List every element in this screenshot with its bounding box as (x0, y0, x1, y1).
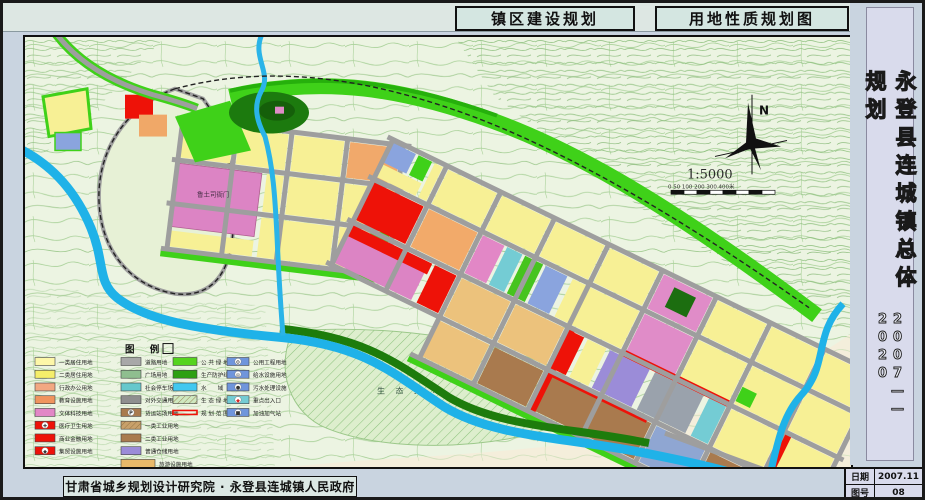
svg-text:✚: ✚ (43, 423, 47, 429)
legend-label: 规 划 范 围 (201, 409, 229, 417)
page-title-main: 镇区建设规划 (455, 6, 635, 31)
scale-ratio: 1:5000 (687, 167, 733, 182)
header-strip: 镇区建设规划 用地性质规划图 (3, 3, 922, 32)
legend-label: 加油加气站 (253, 409, 281, 417)
legend-label: 广场用地 (145, 371, 168, 379)
plan-years-vertical: 2007——2020 (875, 312, 905, 460)
sheet-label: 图号 (846, 485, 875, 500)
svg-text:■: ■ (236, 411, 241, 417)
legend-label: 普通仓储用地 (145, 448, 179, 456)
sheet-value: 08 (875, 485, 922, 500)
plan-sheet: 镇区建设规划 用地性质规划图 (0, 0, 925, 500)
legend-label: 污水处理设施 (253, 384, 287, 392)
legend-label: 生 态 绿 地 (201, 397, 229, 405)
planning-map: 生 态 绿 地 (25, 37, 851, 467)
legend-label: 文体科技用地 (59, 409, 93, 417)
sheet-info-table: 日期 2007.11 图号 08 (844, 467, 922, 499)
page-title-sub: 用地性质规划图 (655, 6, 849, 31)
legend-label: 行政办公用地 (59, 384, 93, 392)
sheet-row: 图号 08 (846, 485, 922, 500)
credits-bar: 甘肃省城乡规划设计研究院 · 永登县连城镇人民政府 (63, 476, 357, 497)
legend-label: 公用工程用地 (253, 358, 287, 366)
legend-label: 一类工业用地 (145, 422, 179, 430)
sidebar-strip: 永登县连城镇总体规划 2007——2020 (850, 3, 922, 465)
svg-text:◆: ◆ (236, 398, 240, 404)
legend-label: 二类居住用地 (59, 371, 93, 379)
legend-label: 一类居住用地 (59, 358, 93, 366)
svg-text:P: P (129, 411, 133, 417)
compass-n-label: N (759, 104, 769, 118)
date-value: 2007.11 (875, 469, 922, 484)
legend-label: 重点出入口 (253, 397, 281, 405)
map-canvas[interactable]: 生 态 绿 地 (23, 35, 853, 469)
legend-label: 教育设施用地 (59, 397, 93, 405)
svg-text:●: ● (236, 385, 241, 391)
date-row: 日期 2007.11 (846, 469, 922, 485)
legend-label: 给水设施用地 (253, 371, 287, 379)
sidebar-title-panel: 永登县连城镇总体规划 2007——2020 (866, 7, 914, 461)
legend-label: 医疗卫生用地 (59, 422, 93, 430)
yamen-label: 鲁土司衙门 (197, 189, 229, 198)
svg-text:◎: ◎ (236, 372, 241, 378)
svg-text:⊙: ⊙ (236, 360, 240, 366)
legend-label: 公 共 绿 地 (201, 358, 229, 366)
legend-title: 图 例 (125, 344, 165, 356)
legend-label: 商业金融用地 (59, 435, 93, 443)
svg-text:◆: ◆ (43, 449, 47, 455)
legend-label: 道路用地 (145, 358, 168, 366)
plan-title-vertical: 永登县连城镇总体规划 (860, 70, 920, 300)
legend-label: 水 域 (201, 384, 224, 392)
scale-tick-labels: 0 50 100 200 300 400米 (668, 182, 735, 190)
legend-label: 二类工业用地 (145, 435, 179, 443)
date-label: 日期 (846, 469, 875, 484)
legend-label: 集贸设施用地 (59, 448, 93, 456)
